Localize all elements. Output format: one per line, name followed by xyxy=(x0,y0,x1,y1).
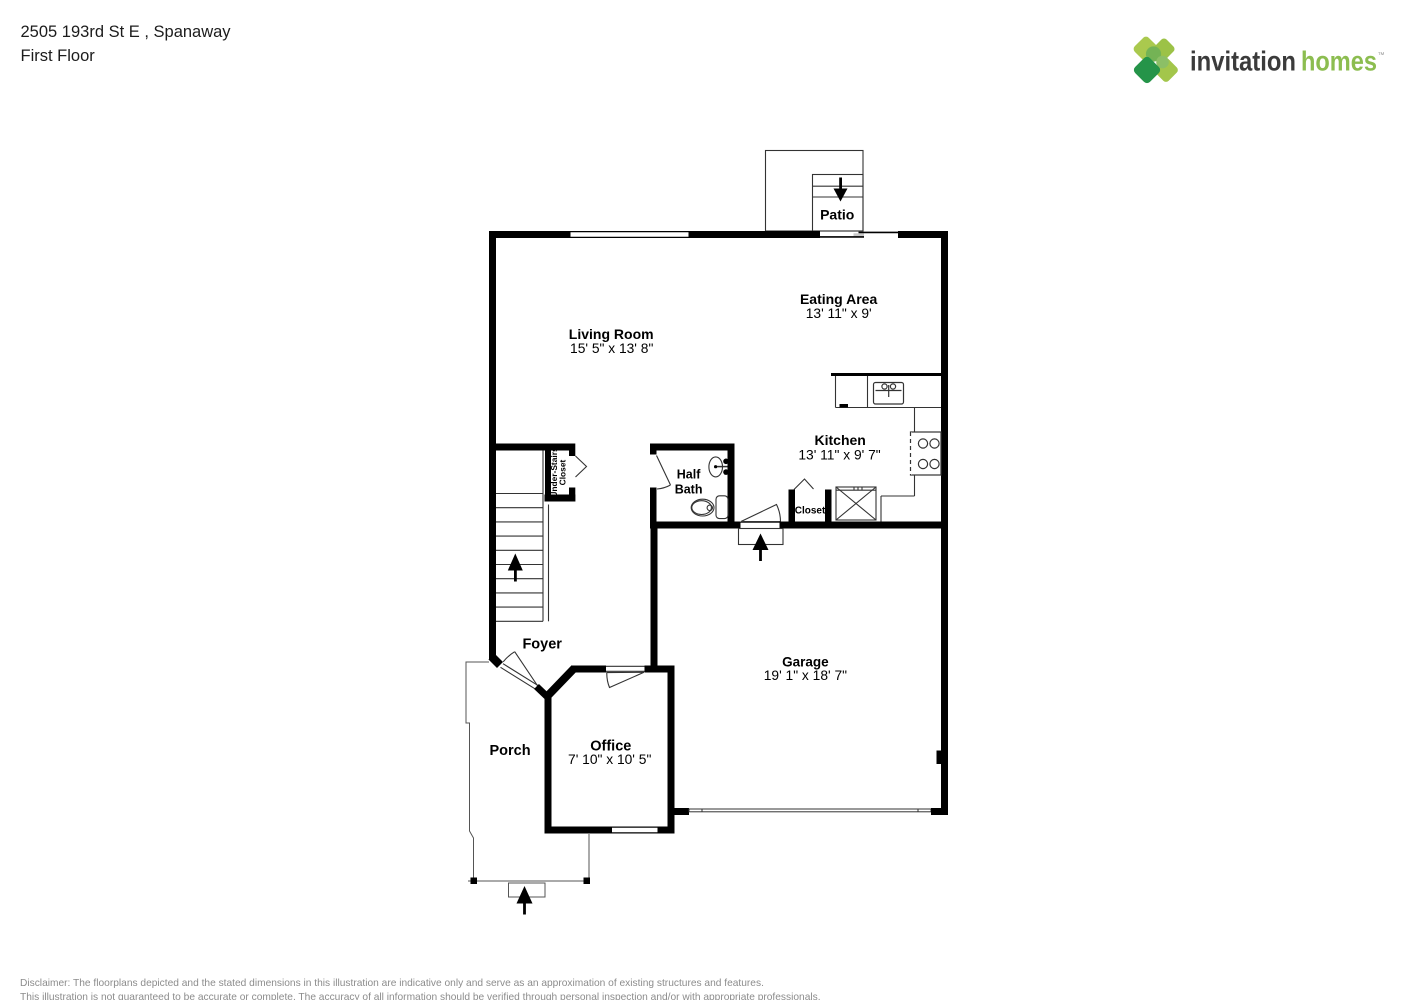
svg-text:Eating Area: Eating Area xyxy=(800,291,877,307)
svg-text:Patio: Patio xyxy=(820,206,854,222)
svg-text:19' 1" x 18' 7": 19' 1" x 18' 7" xyxy=(764,668,847,683)
svg-text:15' 5" x 13' 8": 15' 5" x 13' 8" xyxy=(570,341,653,356)
svg-text:13' 11" x 9': 13' 11" x 9' xyxy=(806,306,872,321)
svg-text:Living Room: Living Room xyxy=(569,326,654,342)
svg-text:Closet: Closet xyxy=(795,506,826,517)
svg-text:Foyer: Foyer xyxy=(522,637,562,653)
svg-text:Closet: Closet xyxy=(558,459,568,485)
svg-text:Half: Half xyxy=(677,468,701,482)
svg-text:13' 11" x 9' 7": 13' 11" x 9' 7" xyxy=(798,448,880,463)
svg-text:Porch: Porch xyxy=(489,743,530,759)
svg-text:Kitchen: Kitchen xyxy=(815,432,866,448)
svg-text:Bath: Bath xyxy=(675,483,703,497)
svg-text:7' 10" x 10' 5": 7' 10" x 10' 5" xyxy=(568,752,651,767)
